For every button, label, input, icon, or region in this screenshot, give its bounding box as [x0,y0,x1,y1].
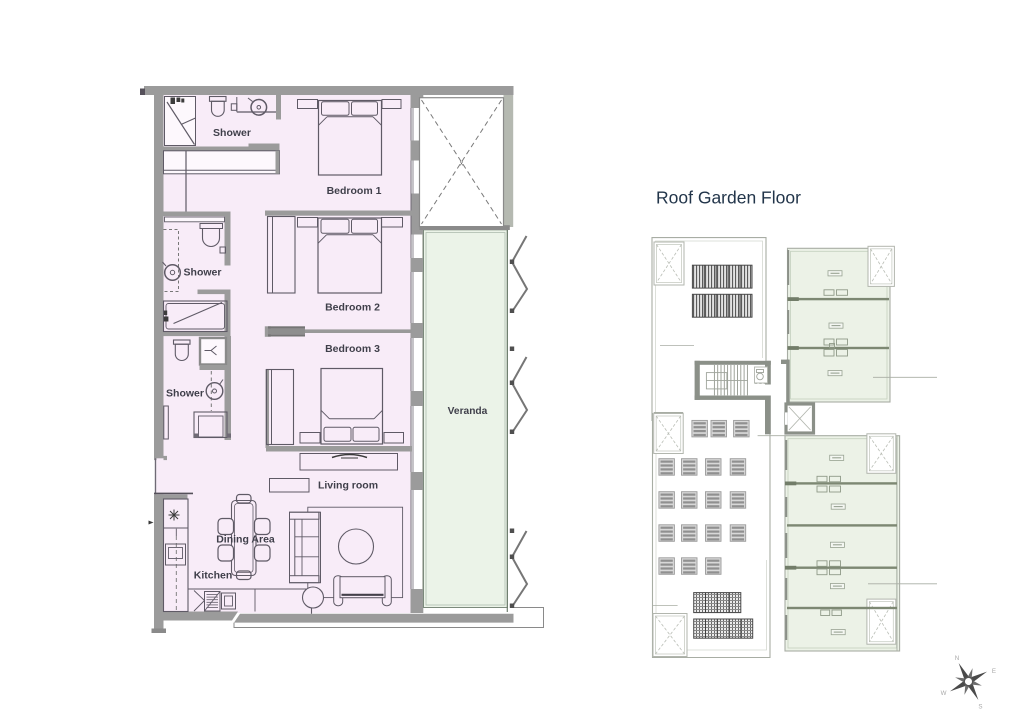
svg-text:Living room: Living room [318,480,378,492]
svg-text:Bedroom 1: Bedroom 1 [327,185,382,197]
svg-text:Shower: Shower [213,127,251,139]
svg-text:Shower: Shower [184,267,222,279]
svg-text:N: N [955,655,959,662]
svg-text:E: E [992,668,996,675]
svg-text:Veranda: Veranda [448,406,488,417]
svg-text:Kitchen: Kitchen [194,570,233,582]
svg-text:Bedroom 2: Bedroom 2 [325,302,380,314]
svg-text:Shower: Shower [166,388,204,400]
svg-text:Bedroom 3: Bedroom 3 [325,343,380,355]
svg-text:Roof Garden Floor: Roof Garden Floor [656,188,801,208]
svg-text:W: W [941,690,947,697]
svg-text:Dining Area: Dining Area [216,534,275,546]
svg-text:S: S [978,704,982,711]
svg-text:x: x [460,161,464,168]
